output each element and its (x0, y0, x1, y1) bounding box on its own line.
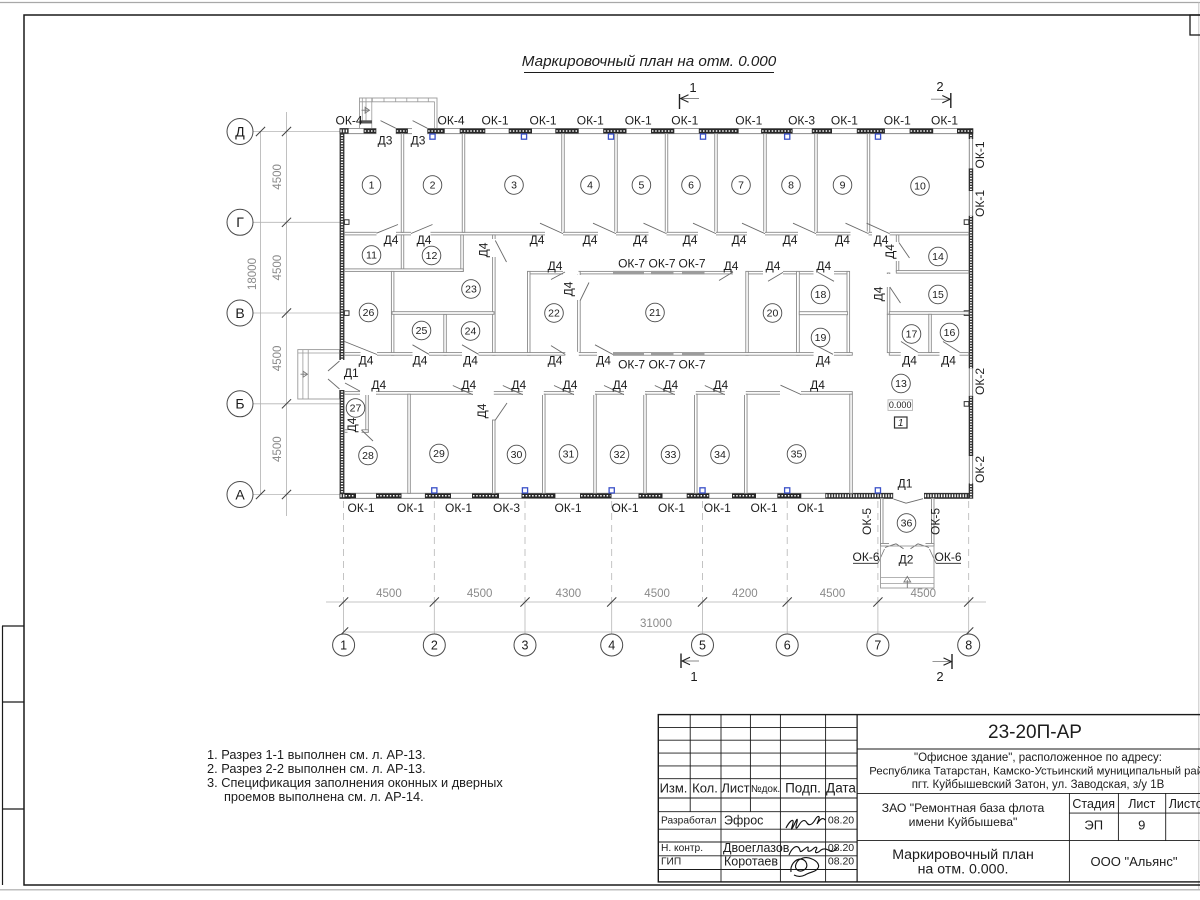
svg-text:7: 7 (874, 638, 881, 652)
svg-text:ОК-1: ОК-1 (797, 501, 824, 515)
svg-text:Маркировочный план на отм. 0.0: Маркировочный план на отм. 0.000 (522, 53, 777, 70)
svg-text:ОК-1: ОК-1 (735, 114, 762, 128)
svg-text:проемов выполнена см. л. АР-14: проемов выполнена см. л. АР-14. (224, 789, 424, 804)
svg-text:ОК-1: ОК-1 (973, 141, 987, 168)
svg-text:2: 2 (936, 79, 943, 94)
svg-text:ОК-6: ОК-6 (853, 550, 880, 564)
svg-text:4: 4 (587, 180, 593, 192)
svg-text:Д4: Д4 (417, 233, 432, 247)
svg-text:23: 23 (465, 284, 477, 296)
svg-text:14: 14 (932, 251, 944, 263)
svg-text:Д4: Д4 (477, 242, 491, 257)
svg-text:4500: 4500 (644, 588, 670, 600)
svg-text:13: 13 (895, 378, 907, 390)
svg-text:"Офисное здание", расположенно: "Офисное здание", расположенное по адрес… (914, 752, 1162, 764)
svg-text:8: 8 (965, 638, 972, 652)
svg-text:ОК-5: ОК-5 (860, 508, 874, 535)
svg-text:Д4: Д4 (810, 378, 825, 392)
svg-text:ОК-1: ОК-1 (625, 114, 652, 128)
svg-text:7: 7 (738, 180, 744, 192)
svg-text:ОК-6: ОК-6 (935, 550, 962, 564)
svg-text:№док.: №док. (751, 784, 780, 795)
svg-text:Разработал: Разработал (661, 815, 717, 827)
svg-text:Лист: Лист (1128, 797, 1155, 811)
svg-text:Д4: Д4 (384, 233, 399, 247)
svg-text:ОК-1: ОК-1 (658, 501, 685, 515)
svg-text:20: 20 (767, 308, 779, 320)
svg-text:1: 1 (898, 418, 904, 429)
svg-text:25: 25 (416, 325, 428, 337)
svg-text:24: 24 (465, 326, 477, 338)
svg-text:Д4: Д4 (475, 403, 489, 418)
svg-text:имени Куйбышева": имени Куйбышева" (909, 815, 1018, 829)
svg-text:4300: 4300 (556, 588, 582, 600)
svg-text:Д4: Д4 (732, 233, 747, 247)
svg-text:6: 6 (688, 180, 694, 192)
svg-text:ОК-1: ОК-1 (577, 114, 604, 128)
svg-text:В: В (235, 305, 244, 321)
svg-text:Д4: Д4 (530, 233, 545, 247)
svg-text:ОК-1: ОК-1 (612, 501, 639, 515)
svg-text:Н. контр.: Н. контр. (661, 843, 703, 854)
svg-text:ОК-1: ОК-1 (348, 501, 375, 515)
svg-text:31: 31 (563, 449, 575, 461)
svg-text:17: 17 (906, 329, 918, 341)
svg-text:Д2: Д2 (899, 553, 914, 567)
svg-text:ОК-1: ОК-1 (884, 114, 911, 128)
svg-text:ОК-2: ОК-2 (973, 368, 987, 395)
svg-text:1. Разрез 1-1 выполнен см. л.: 1. Разрез 1-1 выполнен см. л. АР-13. (207, 747, 426, 762)
svg-text:ОК-1: ОК-1 (397, 501, 424, 515)
svg-text:1: 1 (369, 180, 375, 192)
svg-text:А: А (235, 486, 245, 502)
svg-text:4500: 4500 (272, 164, 284, 190)
svg-text:ОК-5: ОК-5 (929, 508, 943, 535)
svg-text:21: 21 (649, 307, 661, 319)
svg-text:на отм. 0.000.: на отм. 0.000. (918, 862, 1009, 878)
svg-text:пгт. Куйбышевский Затон, ул. З: пгт. Куйбышевский Затон, ул. Заводская, … (912, 779, 1165, 791)
svg-text:15: 15 (932, 289, 944, 301)
svg-text:ОК-1: ОК-1 (704, 501, 731, 515)
svg-text:30: 30 (511, 449, 523, 461)
svg-text:ОК-4: ОК-4 (438, 114, 465, 128)
svg-text:Д4: Д4 (413, 353, 428, 367)
svg-text:4: 4 (608, 638, 615, 652)
svg-text:Г: Г (236, 214, 244, 230)
svg-text:Д4: Д4 (359, 354, 374, 368)
svg-text:ОК-2: ОК-2 (973, 456, 987, 483)
svg-text:Д4: Д4 (941, 354, 956, 368)
svg-text:4500: 4500 (911, 588, 937, 600)
svg-text:9: 9 (840, 180, 846, 192)
svg-text:18000: 18000 (247, 258, 259, 290)
svg-text:Лист: Лист (721, 781, 749, 796)
svg-text:Д4: Д4 (371, 378, 386, 392)
svg-text:ОК-3: ОК-3 (493, 501, 520, 515)
svg-text:36: 36 (901, 518, 913, 530)
svg-text:3: 3 (522, 638, 529, 652)
svg-text:ЗАО "Ремонтная база флота: ЗАО "Ремонтная база флота (882, 801, 1045, 815)
svg-text:Д4: Д4 (902, 354, 917, 368)
svg-text:Д3: Д3 (378, 134, 393, 148)
svg-text:Д3: Д3 (411, 134, 426, 148)
svg-text:3: 3 (511, 180, 517, 192)
svg-text:33: 33 (665, 449, 677, 461)
svg-text:Стадия: Стадия (1072, 797, 1115, 811)
svg-text:Д4: Д4 (816, 353, 831, 367)
svg-text:27: 27 (350, 403, 362, 415)
svg-text:ЭП: ЭП (1084, 818, 1103, 833)
svg-text:4500: 4500 (272, 436, 284, 462)
svg-text:ООО "Альянс": ООО "Альянс" (1091, 854, 1178, 869)
svg-text:Дата: Дата (826, 781, 856, 796)
svg-text:ОК-7: ОК-7 (679, 257, 706, 271)
svg-text:Д4: Д4 (548, 353, 563, 367)
svg-text:10: 10 (914, 181, 926, 193)
svg-text:4500: 4500 (467, 588, 493, 600)
svg-text:Б: Б (235, 396, 244, 412)
svg-text:1: 1 (690, 669, 697, 684)
svg-text:5: 5 (638, 180, 644, 192)
svg-text:Д4: Д4 (683, 233, 698, 247)
svg-text:ОК-1: ОК-1 (831, 114, 858, 128)
svg-text:Д4: Д4 (724, 259, 739, 273)
svg-text:Д4: Д4 (766, 259, 781, 273)
svg-text:Д4: Д4 (511, 378, 526, 392)
svg-text:Д4: Д4 (596, 353, 611, 367)
svg-text:1: 1 (689, 80, 696, 95)
svg-text:35: 35 (791, 449, 803, 461)
svg-text:ОК-7: ОК-7 (649, 358, 676, 372)
svg-text:ОК-7: ОК-7 (679, 358, 706, 372)
svg-text:Д4: Д4 (883, 244, 897, 259)
svg-text:ОК-1: ОК-1 (671, 114, 698, 128)
svg-text:Д4: Д4 (633, 233, 648, 247)
svg-text:Д4: Д4 (613, 378, 628, 392)
svg-text:12: 12 (426, 250, 438, 262)
svg-text:2: 2 (430, 180, 436, 192)
svg-text:8: 8 (788, 180, 794, 192)
svg-text:Д4: Д4 (816, 259, 831, 273)
svg-text:2: 2 (431, 638, 438, 652)
svg-text:3. Спецификация заполнения око: 3. Спецификация заполнения оконных и две… (207, 775, 503, 790)
svg-text:ОК-4: ОК-4 (336, 114, 363, 128)
svg-text:Коротаев: Коротаев (724, 854, 778, 868)
svg-text:08.20: 08.20 (828, 815, 854, 827)
svg-text:Двоеглазов: Двоеглазов (723, 841, 790, 855)
svg-text:Д4: Д4 (548, 259, 563, 273)
svg-text:08.20: 08.20 (828, 855, 854, 867)
svg-text:Д4: Д4 (563, 378, 578, 392)
svg-text:ОК-3: ОК-3 (788, 114, 815, 128)
svg-text:Листов: Листов (1169, 797, 1200, 811)
svg-text:1: 1 (340, 638, 347, 652)
svg-text:Д: Д (235, 123, 245, 139)
svg-text:Д4: Д4 (345, 417, 359, 432)
svg-text:4500: 4500 (820, 588, 846, 600)
svg-text:28: 28 (362, 450, 374, 462)
svg-text:Республика Татарстан, Камско-У: Республика Татарстан, Камско-Устьинский … (869, 766, 1200, 778)
svg-text:4500: 4500 (272, 255, 284, 281)
svg-text:0.000: 0.000 (889, 400, 912, 410)
svg-text:18: 18 (815, 289, 827, 301)
svg-text:Д4: Д4 (461, 378, 476, 392)
svg-text:9: 9 (1138, 818, 1145, 833)
svg-text:Д4: Д4 (663, 378, 678, 392)
svg-text:16: 16 (944, 327, 956, 339)
svg-text:5: 5 (699, 638, 706, 652)
svg-text:19: 19 (815, 332, 827, 344)
svg-text:Д4: Д4 (835, 233, 850, 247)
svg-text:26: 26 (363, 307, 375, 319)
svg-text:ОК-1: ОК-1 (931, 114, 958, 128)
svg-text:6: 6 (784, 638, 791, 652)
svg-text:Д1: Д1 (344, 366, 359, 380)
svg-text:Кол.: Кол. (692, 781, 718, 796)
svg-text:4500: 4500 (376, 588, 402, 600)
svg-text:Д4: Д4 (713, 378, 728, 392)
svg-text:Д4: Д4 (562, 281, 576, 296)
svg-text:Д4: Д4 (463, 353, 478, 367)
svg-text:ОК-7: ОК-7 (618, 358, 645, 372)
svg-text:ГИП: ГИП (661, 856, 681, 867)
svg-text:ОК-1: ОК-1 (445, 501, 472, 515)
svg-text:Подп.: Подп. (785, 781, 821, 796)
svg-text:Д4: Д4 (583, 233, 598, 247)
svg-text:ОК-1: ОК-1 (530, 114, 557, 128)
svg-text:22: 22 (548, 308, 560, 320)
svg-text:ОК-7: ОК-7 (649, 257, 676, 271)
svg-text:ОК-7: ОК-7 (618, 257, 645, 271)
svg-text:31000: 31000 (640, 618, 672, 630)
svg-text:2: 2 (936, 669, 943, 684)
svg-text:ОК-1: ОК-1 (973, 190, 987, 217)
svg-text:Д1: Д1 (898, 477, 913, 491)
svg-text:2. Разрез 2-2 выполнен см. л.: 2. Разрез 2-2 выполнен см. л. АР-13. (207, 761, 426, 776)
svg-text:Изм.: Изм. (660, 781, 688, 796)
svg-text:ОК-1: ОК-1 (751, 501, 778, 515)
svg-text:4200: 4200 (732, 588, 758, 600)
svg-text:32: 32 (614, 449, 626, 461)
svg-text:ОК-1: ОК-1 (482, 114, 509, 128)
svg-text:11: 11 (366, 250, 377, 262)
svg-text:ОК-1: ОК-1 (555, 501, 582, 515)
svg-text:Д4: Д4 (872, 286, 886, 301)
svg-text:4500: 4500 (272, 346, 284, 372)
svg-text:Эфрос: Эфрос (724, 814, 763, 828)
svg-text:29: 29 (433, 448, 445, 460)
svg-text:23-20П-АР: 23-20П-АР (988, 722, 1082, 743)
svg-text:34: 34 (714, 449, 726, 461)
svg-text:Д4: Д4 (783, 233, 798, 247)
